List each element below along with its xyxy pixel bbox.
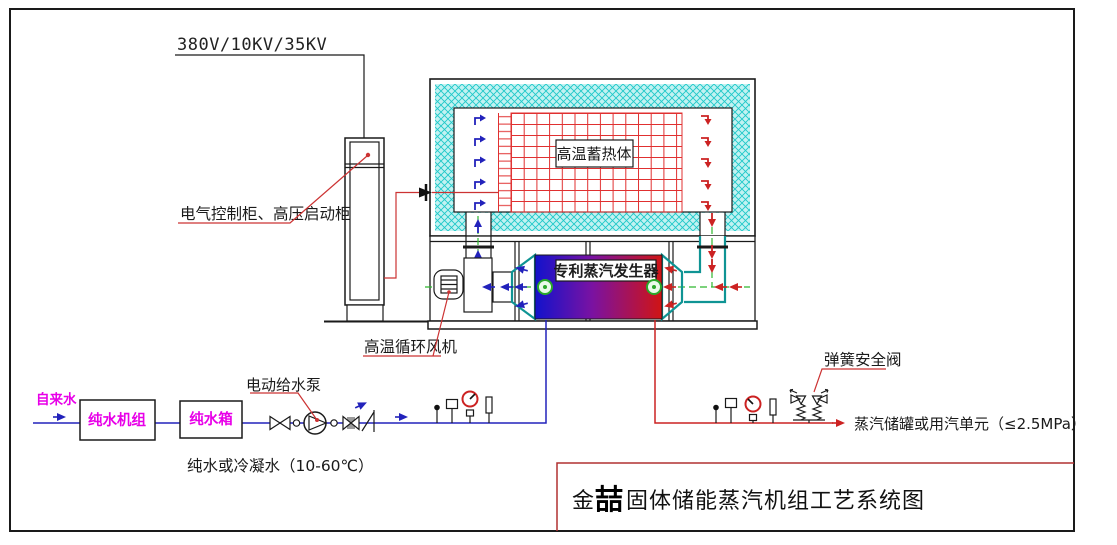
shutoff-valve-icon [343,417,359,430]
flange-icon [293,420,299,426]
machine-base [428,321,757,329]
flange-icon [331,420,337,426]
process-diagram-canvas: 380V/10KV/35KV 电气控制柜、高压启动柜 高温蓄热体 [0,0,1117,545]
purifier-label: 纯水机组 [88,411,146,429]
power-voltage-label: 380V/10KV/35KV [177,35,327,55]
storage-unit: 高温蓄热体 [419,79,755,236]
tap-water-label: 自来水 [36,391,77,408]
diagram-page: 380V/10KV/35KV 电气控制柜、高压启动柜 高温蓄热体 [0,0,1117,545]
feed-pump-label: 电动给水泵 [246,376,321,394]
safety-valve-label: 弹簧安全阀 [824,351,902,369]
fan-label: 高温循环风机 [364,338,458,356]
storage-label: 高温蓄热体 [556,145,631,163]
steam-destination-label: 蒸汽储罐或用汽单元（≤2.5MPa） [854,415,1086,433]
water-condition-label: 纯水或冷凝水（10-60℃） [187,457,373,475]
pump-icon [304,412,326,434]
tank-label: 纯水箱 [189,410,233,428]
cabinet-label: 电气控制柜、高压启动柜 [180,205,351,223]
generator-label: 专利蒸汽发生器 [553,262,659,280]
